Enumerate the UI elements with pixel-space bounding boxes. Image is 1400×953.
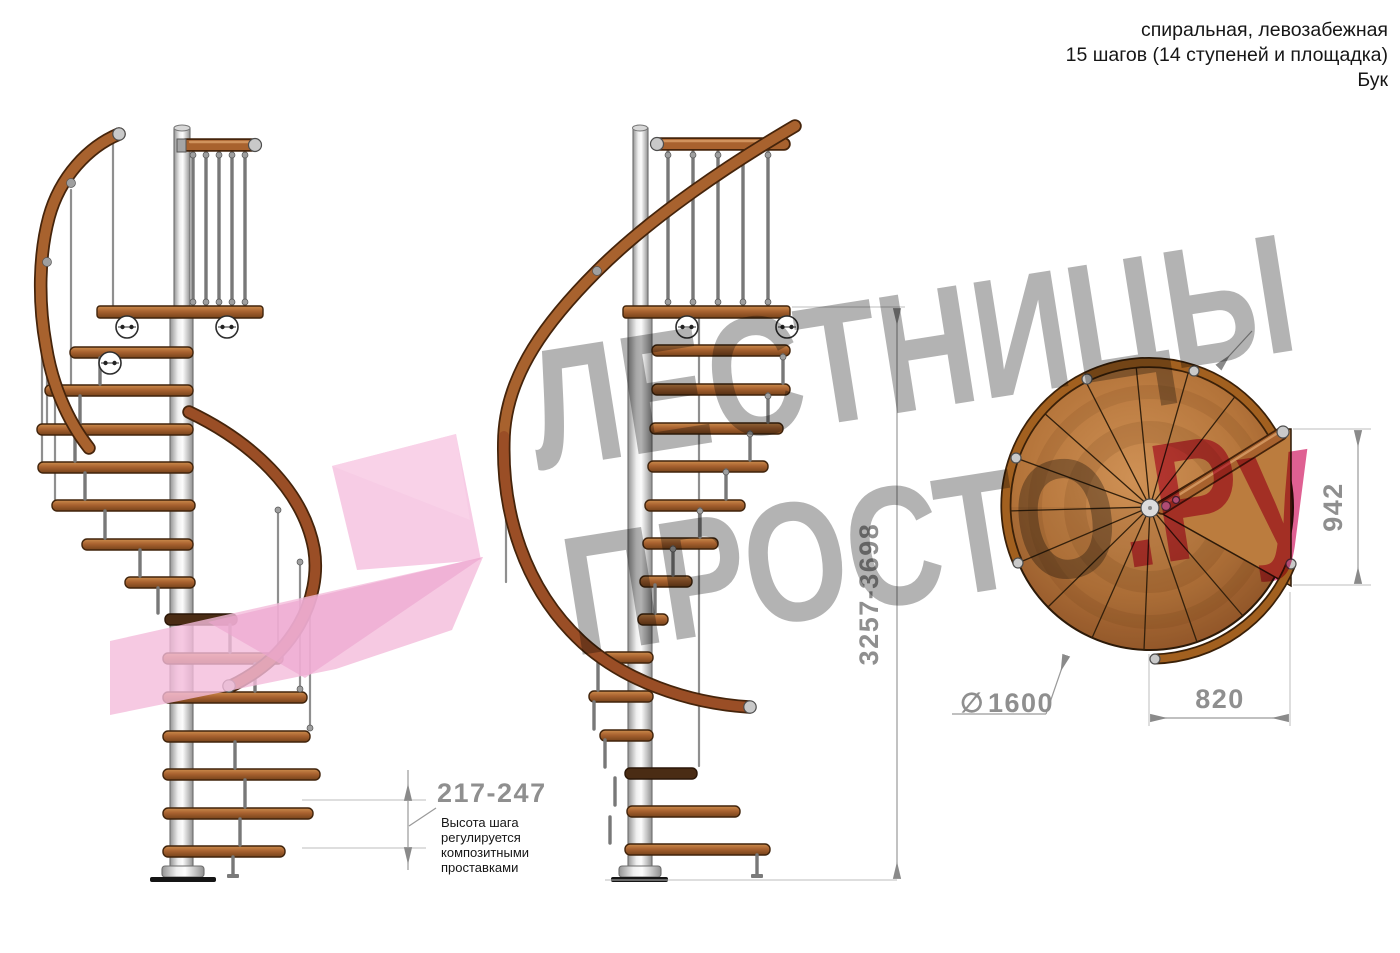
step-height-label: 217-247 <box>437 778 547 808</box>
diameter-value-label: 1600 <box>988 688 1054 718</box>
dimension-step-height: 217-247 Высота шага регулируется компози… <box>302 770 547 875</box>
pink-logo <box>110 434 483 715</box>
header-line-steps: 15 шагов (14 ступеней и площадка) <box>1066 43 1388 68</box>
plan-height-label: 942 <box>1318 482 1348 532</box>
left-landing-balusters <box>190 152 248 305</box>
watermark-brand-suffix: .Ру <box>1102 387 1328 605</box>
left-elevation-view <box>37 125 320 882</box>
step-height-note-line3: композитными <box>441 845 529 860</box>
step-height-note-line4: проставками <box>441 860 518 875</box>
left-landing-handrail <box>177 139 262 153</box>
dimension-diameter: ∅ 1600 <box>952 656 1066 718</box>
header-info: спиральная, левозабежная 15 шагов (14 ст… <box>1066 18 1388 93</box>
header-line-material: Бук <box>1066 68 1388 93</box>
drawing-canvas: 3257-3698 217-247 Высота шага регулирует… <box>0 0 1400 953</box>
diameter-symbol: ∅ <box>960 688 985 718</box>
technical-drawing-svg: 3257-3698 217-247 Высота шага регулирует… <box>0 0 1400 953</box>
step-height-note-line2: регулируется <box>441 830 521 845</box>
left-landing-platform <box>97 306 263 318</box>
left-mounting-plates <box>99 316 238 374</box>
header-line-type: спиральная, левозабежная <box>1066 18 1388 43</box>
step-height-note-line1: Высота шага <box>441 815 519 830</box>
plan-width-label: 820 <box>1195 684 1245 714</box>
